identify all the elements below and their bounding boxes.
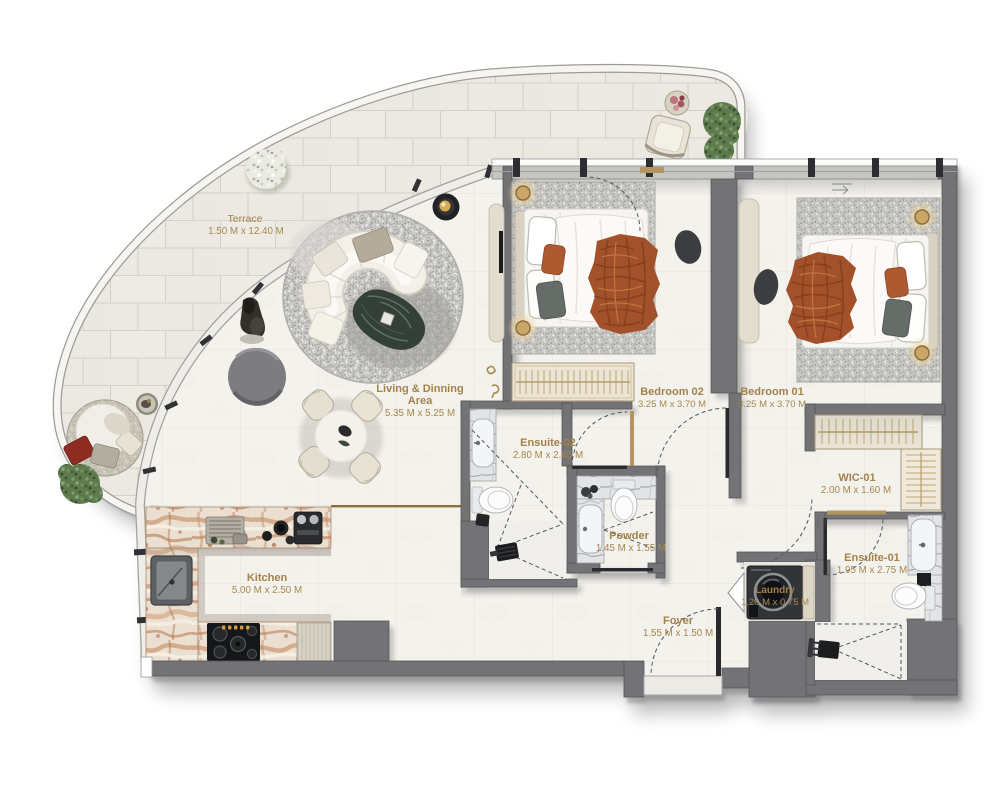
svg-text:1.95 M x 2.75 M: 1.95 M x 2.75 M (837, 565, 907, 576)
svg-text:1.45 M x 1.55 M: 1.45 M x 1.55 M (596, 543, 666, 554)
svg-text:Laundry: Laundry (755, 585, 795, 596)
svg-text:WIC-01: WIC-01 (838, 472, 875, 484)
svg-text:1.20 M x 0.75 M: 1.20 M x 0.75 M (741, 597, 809, 608)
svg-text:2.80 M x 2.85 M: 2.80 M x 2.85 M (513, 450, 583, 461)
svg-text:Living & Dinning: Living & Dinning (376, 383, 463, 395)
svg-text:5.35 M x 5.25 M: 5.35 M x 5.25 M (385, 408, 455, 419)
svg-text:5.00 M x 2.50 M: 5.00 M x 2.50 M (232, 585, 302, 596)
svg-text:Terrace: Terrace (227, 213, 262, 225)
svg-text:Kitchen: Kitchen (247, 572, 288, 584)
svg-text:Bedroom 01: Bedroom 01 (740, 386, 804, 398)
svg-text:Powder: Powder (609, 530, 649, 542)
svg-text:2.00 M x 1.60 M: 2.00 M x 1.60 M (821, 485, 891, 496)
svg-text:Foyer: Foyer (663, 615, 694, 627)
svg-text:Ensuite-01: Ensuite-01 (844, 552, 900, 564)
svg-text:3.25 M x 3.70 M: 3.25 M x 3.70 M (738, 399, 806, 410)
svg-text:1.55 M x 1.50 M: 1.55 M x 1.50 M (643, 628, 713, 639)
svg-text:Bedroom 02: Bedroom 02 (640, 386, 704, 398)
svg-text:3.25 M x 3.70 M: 3.25 M x 3.70 M (638, 399, 706, 410)
svg-text:1.50 M x 12.40 M: 1.50 M x 12.40 M (208, 226, 284, 237)
svg-text:Area: Area (408, 395, 433, 407)
svg-text:Ensuite-02: Ensuite-02 (520, 437, 576, 449)
